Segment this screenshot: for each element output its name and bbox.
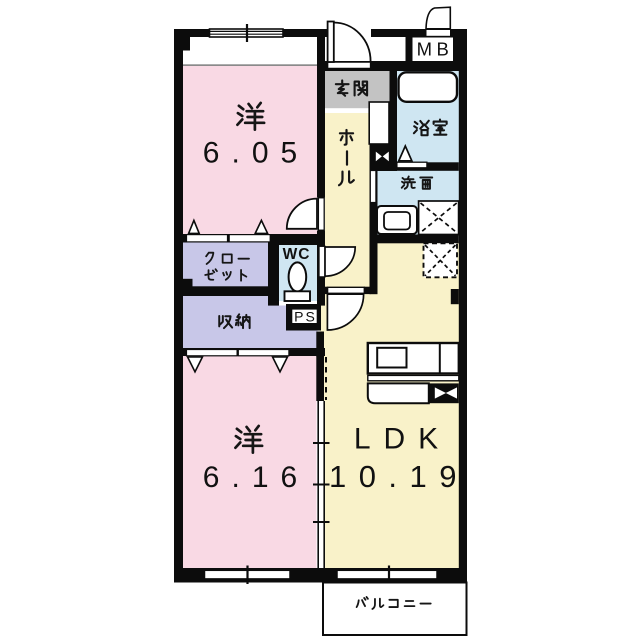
svg-text:LDK: LDK (354, 423, 451, 456)
svg-text:6.05: 6.05 (203, 137, 309, 170)
svg-text:PS: PS (294, 308, 317, 324)
svg-text:6.16: 6.16 (203, 461, 309, 494)
svg-text:MB: MB (417, 38, 454, 59)
svg-text:WC: WC (283, 246, 311, 263)
svg-text:10.19: 10.19 (329, 459, 469, 494)
